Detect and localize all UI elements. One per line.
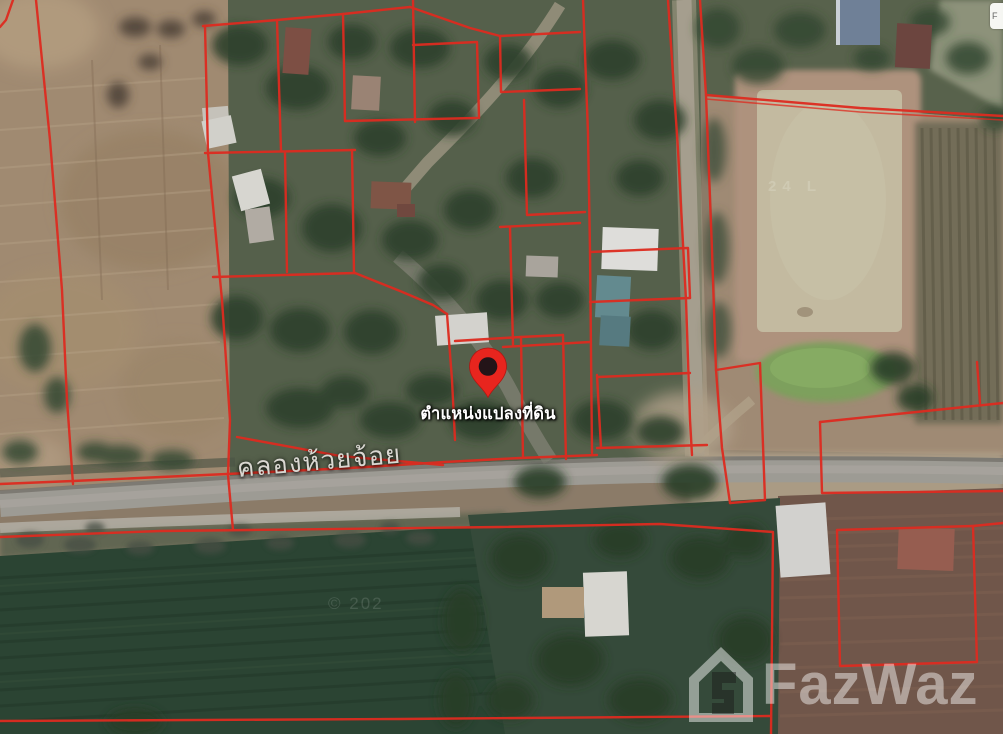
imagery-copyright-watermark: © 202 <box>328 594 384 614</box>
map-label-partial: F <box>990 3 1003 29</box>
location-pin-icon[interactable] <box>468 347 508 399</box>
pin-label: ตำแหน่งแปลงที่ดิน <box>402 401 574 427</box>
fazwaz-brand-text: FazWaz <box>762 656 979 714</box>
satellite-map-view[interactable]: ตำแหน่งแปลงที่ดิน คลองห้วยจ้อย 24 L © 20… <box>0 0 1003 734</box>
imagery-faint-text: 24 L <box>768 178 822 195</box>
fazwaz-house-f-icon <box>684 642 758 727</box>
fazwaz-watermark: FazWaz <box>684 642 979 727</box>
